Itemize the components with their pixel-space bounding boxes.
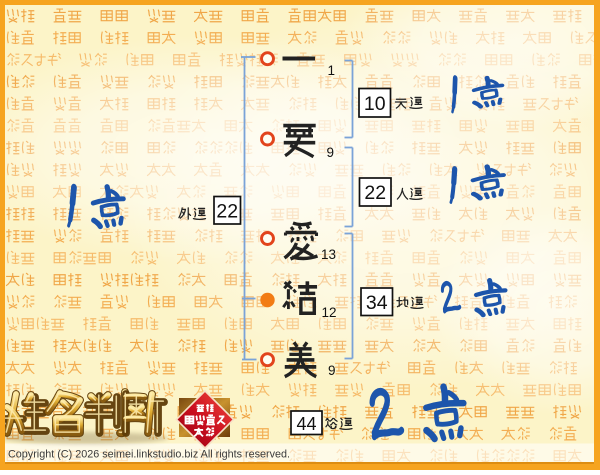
svg-text:9: 9 — [328, 363, 336, 378]
svg-text:12: 12 — [322, 305, 337, 320]
svg-text:22: 22 — [216, 200, 238, 222]
svg-text:10: 10 — [364, 93, 386, 115]
svg-text:44: 44 — [296, 414, 316, 434]
svg-text:1: 1 — [328, 63, 336, 78]
svg-text:9: 9 — [327, 145, 335, 160]
svg-text:13: 13 — [321, 247, 336, 262]
svg-text:Copyright (C) 2026 seimei.link: Copyright (C) 2026 seimei.linkstudio.biz… — [8, 449, 290, 461]
svg-text:34: 34 — [366, 292, 388, 314]
svg-text:22: 22 — [364, 182, 386, 204]
